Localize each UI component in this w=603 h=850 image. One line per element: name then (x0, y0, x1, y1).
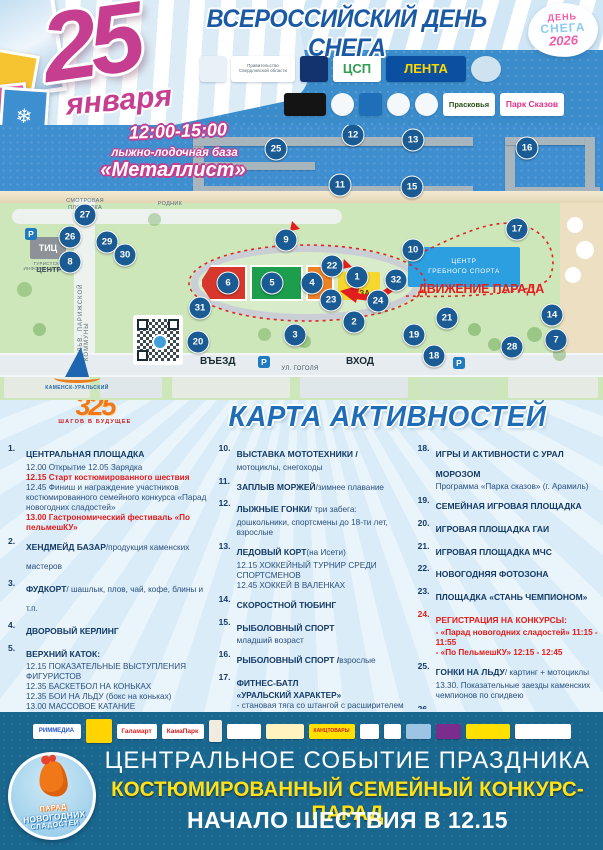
kanctovary-logo: КАНЦТОВАРЫ (309, 724, 355, 739)
map-marker-24: 24 (367, 290, 390, 313)
promenade-road (12, 209, 342, 224)
speaker-photo (471, 56, 501, 82)
kamensk-crest-logo (200, 56, 226, 82)
activities-col-3: 18.ИГРЫ И АКТИВНОСТИ С УРАЛ МОРОЗОМПрогр… (418, 443, 598, 709)
activity-number: 16. (219, 649, 234, 669)
city-logo-sail (65, 347, 89, 377)
activity-description: / три забега: (310, 505, 357, 514)
rowing-label2: ГРЕБНОГО СПОРТА (428, 267, 500, 277)
sponsor-logo (406, 724, 431, 739)
map-marker-20: 20 (187, 331, 210, 354)
activity-number: 25. (418, 661, 433, 701)
rowing-center-building: ЦЕНТР ГРЕБНОГО СПОРТА (408, 247, 520, 287)
building-block (300, 377, 408, 398)
activity-number: 3. (8, 578, 23, 617)
activity-item-11: 11.ЗАПЛЫВ МОРЖЕЙ/зимнее плавание (219, 476, 409, 496)
activity-title: ИГРОВАЯ ПЛОЩАДКА МЧС (436, 547, 552, 557)
map-marker-30: 30 (114, 244, 137, 267)
activity-detail: 12.15 Старт костюмированного шествия (26, 473, 210, 483)
activity-title: ЛЕДОВЫЙ КОРТ (237, 547, 307, 557)
activity-item-21: 21.ИГРОВАЯ ПЛОЩАДКА МЧС (418, 541, 598, 561)
activity-number: 5. (8, 643, 23, 709)
activity-detail: Программа «Парка сказов» (г. Арамиль) (436, 482, 598, 492)
activity-title: ВЫСТАВКА МОТОТЕХНИКИ / (237, 449, 358, 459)
venue-name: «Металлист» (88, 159, 258, 182)
building-block (508, 377, 598, 398)
sponsor-strip: РИММЕДИАГаламартКамаПаркКАНЦТОВАРЫ (10, 717, 593, 745)
map-marker-26: 26 (59, 226, 82, 249)
map-marker-1: 1 (346, 266, 369, 289)
footer: РИММЕДИАГаламартКамаПаркКАНЦТОВАРЫ ЦЕНТР… (0, 712, 603, 850)
activity-number: 22. (418, 563, 433, 583)
parking-icon: P (25, 228, 37, 240)
map-marker-2: 2 (343, 311, 366, 334)
activity-title: ИГРЫ И АКТИВНОСТИ С УРАЛ МОРОЗОМ (436, 449, 564, 479)
activity-item-16: 16.РЫБОЛОВНЫЙ СПОРТ /взрослые (219, 649, 409, 669)
qr-code (133, 315, 183, 365)
activity-detail: 12.00 Открытие 12.05 Зарядка (26, 463, 210, 473)
activities-col-1: 1.ЦЕНТРАЛЬНАЯ ПЛОЩАДКА12.00 Открытие 12.… (8, 443, 210, 709)
activity-item-17: 17.ФИТНЕС-БАТЛ«УРАЛЬСКИЙ ХАРАКТЕР»- стан… (219, 672, 409, 709)
activity-title: ФУДКОРТ (26, 584, 66, 594)
map-marker-7: 7 (545, 329, 568, 352)
rim-media-logo: РИММЕДИА (33, 724, 81, 739)
activity-item-13: 13.ЛЕДОВЫЙ КОРТ(на Исети)12.15 ХОККЕЙНЫЙ… (219, 541, 409, 591)
activity-number: 21. (418, 541, 433, 561)
map-marker-25: 25 (265, 138, 288, 161)
activity-number: 4. (8, 620, 23, 640)
lenta-logo: ЛЕНТА (386, 56, 466, 82)
map-marker-16: 16 (516, 137, 539, 160)
activities-columns: 1.ЦЕНТРАЛЬНАЯ ПЛОЩАДКА12.00 Открытие 12.… (8, 443, 598, 709)
activity-number: 20. (418, 518, 433, 538)
map-marker-32: 32 (385, 269, 408, 292)
activity-title: СЕМЕЙНАЯ ИГРОВАЯ ПЛОЩАДКА (436, 501, 582, 511)
activity-item-2: 2.ХЕНДМЕЙД БАЗАР/продукция каменских мас… (8, 536, 210, 575)
building-block (418, 377, 498, 398)
rooster-candy-icon (37, 759, 69, 798)
spring-label: РОДНИК (150, 201, 190, 208)
snow-day-poster: ❄ ВСЕРОССИЙСКИЙ ДЕНЬ СНЕГА ДЕНЬ СНЕГА 20… (0, 0, 603, 850)
activity-detail: 13.00 МАССОВОЕ КАТАНИЕ (26, 702, 210, 709)
activity-item-26: 26.ТИЦ / КАФЕ «АВОКАДО»- «Татьянин сбите… (418, 704, 598, 709)
activity-item-22: 22.НОВОГОДНЯЯ ФОТОЗОНА (418, 563, 598, 583)
activity-detail: 13.00 Гастрономический фестиваль «По пел… (26, 513, 210, 533)
activity-item-18: 18.ИГРЫ И АКТИВНОСТИ С УРАЛ МОРОЗОМПрогр… (418, 443, 598, 492)
activity-title: ФИТНЕС-БАТЛ (237, 678, 299, 688)
activity-item-10: 10.ВЫСТАВКА МОТОТЕХНИКИ /мотоциклы, снег… (219, 443, 409, 473)
activity-item-14: 14.СКОРОСТНОЙ ТЮБИНГ (219, 594, 409, 614)
sponsor-logo (209, 720, 222, 742)
activity-title: ИГРОВАЯ ПЛОЩАДКА ГАИ (436, 524, 550, 534)
qr-finder (168, 319, 179, 330)
activity-detail: 12.45 Финиш и награждение участников кос… (26, 483, 210, 513)
sponsor-logo (86, 719, 112, 743)
activity-title: РЕГИСТРАЦИЯ НА КОНКУРСЫ: (436, 615, 567, 625)
map-marker-13: 13 (402, 129, 425, 152)
praskovya-logo: Прасковья (443, 93, 495, 116)
activity-item-15: 15.РЫБОЛОВНЫЙ СПОРТмладший возраст (219, 617, 409, 647)
activity-detail: 12.35 БОИ НА ЛЬДУ (бокс на коньках) (26, 692, 210, 702)
map-marker-17: 17 (506, 218, 529, 241)
map-marker-14: 14 (541, 304, 564, 327)
qr-finder (137, 319, 148, 330)
map-marker-19: 19 (403, 324, 426, 347)
map-marker-15: 15 (401, 176, 424, 199)
activity-item-12: 12.ЛЫЖНЫЕ ГОНКИ/ три забега:дошкольники,… (219, 498, 409, 538)
activity-item-4: 4.ДВОРОВЫЙ КЕРЛИНГ (8, 620, 210, 640)
csp-logo: ЦСП (333, 56, 381, 82)
activity-detail: 12.35 БАСКЕТБОЛ НА КОНЬКАХ (26, 682, 210, 692)
map-marker-11: 11 (329, 174, 352, 197)
partner-logos-row1: Правительство Свердловской областиЦСПЛЕН… (200, 56, 501, 82)
partner-logos-row2: ПрасковьяПарк Сказов (284, 93, 564, 116)
activity-title: ВЕРХНИЙ КАТОК: (26, 649, 100, 659)
k-letter-logo (387, 93, 410, 116)
map-marker-4: 4 (301, 272, 324, 295)
activity-number: 24. (418, 609, 433, 659)
kamensk-uralsky-logo: КАМЕНСК-УРАЛЬСКИЙ (42, 347, 112, 391)
activity-title: ЛЫЖНЫЕ ГОНКИ (237, 504, 310, 514)
sponsor-logo (466, 724, 510, 739)
activity-number: 17. (219, 672, 234, 709)
diamond-logo (300, 56, 328, 82)
footer-heading: ЦЕНТРАЛЬНОЕ СОБЫТИЕ ПРАЗДНИКА (95, 747, 600, 775)
activity-description: (на Исети) (306, 548, 345, 557)
activity-item-5: 5.ВЕРХНИЙ КАТОК:12.15 ПОКАЗАТЕЛЬНЫЕ ВЫСТ… (8, 643, 210, 709)
steps-text: ШАГОВ В БУДУЩЕЕ (40, 419, 150, 425)
activity-title: ЗАПЛЫВ МОРЖЕЙ (237, 482, 316, 492)
map-marker-22: 22 (321, 255, 344, 278)
gogol-street-label: УЛ. ГОГОЛЯ (275, 366, 325, 373)
galamart-logo: Галамарт (117, 724, 157, 739)
activity-number: 1. (8, 443, 23, 533)
activity-number: 19. (418, 495, 433, 515)
activity-number: 13. (219, 541, 234, 591)
a-letter-logo (359, 93, 382, 116)
parking-icon: P (258, 356, 270, 368)
activity-number: 12. (219, 498, 234, 538)
sponsor-logo (266, 724, 304, 739)
terra-sport-logo (284, 93, 326, 116)
sponsor-logo (436, 724, 461, 739)
activity-item-23: 23.ПЛОЩАДКА «СТАНЬ ЧЕМПИОНОМ» (418, 586, 598, 606)
activity-detail: 12.15 ХОККЕЙНЫЙ ТУРНИР СРЕДИ СПОРТСМЕНОВ (237, 561, 409, 581)
activity-item-24: 24.РЕГИСТРАЦИЯ НА КОНКУРСЫ:- «Парад ново… (418, 609, 598, 659)
activity-title: РЫБОЛОВНЫЙ СПОРТ (237, 623, 335, 633)
activity-detail: 12.45 ХОККЕЙ В ВАЛЕНКАХ (237, 581, 409, 591)
sponsor-logo (227, 724, 261, 739)
activity-number: 14. (219, 594, 234, 614)
activity-title: ЦЕНТРАЛЬНАЯ ПЛОЩАДКА (26, 449, 144, 459)
activity-title: ПЛОЩАДКА «СТАНЬ ЧЕМПИОНОМ» (436, 592, 588, 602)
map-marker-27: 27 (74, 204, 97, 227)
activity-detail: младший возраст (237, 636, 409, 646)
entrance-label: ВХОД (346, 356, 374, 367)
activity-detail: мотоциклы, снегоходы (237, 463, 409, 473)
venue-type: лыжно-лодочная база (92, 147, 257, 159)
activity-detail: 12.15 ПОКАЗАТЕЛЬНЫЕ ВЫСТУПЛЕНИЯ ФИГУРИСТ… (26, 662, 210, 682)
badge-year: 2026 (549, 33, 579, 47)
activity-number: 26. (418, 704, 433, 709)
activity-title: РЫБОЛОВНЫЙ СПОРТ / (237, 655, 339, 665)
city-logo-text: КАМЕНСК-УРАЛЬСКИЙ (42, 385, 112, 391)
building-block (172, 377, 290, 398)
activity-number: 18. (418, 443, 433, 492)
map-marker-6: 6 (217, 272, 240, 295)
parking-icon: P (453, 357, 465, 369)
map-marker-31: 31 (189, 297, 212, 320)
avokado-cafe-logo (415, 93, 438, 116)
activity-item-3: 3.ФУДКОРТ/ шашлык, плов, чай, кофе, блин… (8, 578, 210, 617)
activity-number: 11. (219, 476, 234, 496)
activity-number: 2. (8, 536, 23, 575)
map-marker-21: 21 (436, 307, 459, 330)
activity-title: СКОРОСТНОЙ ТЮБИНГ (237, 600, 337, 610)
kamapark-logo: КамаПарк (162, 724, 204, 739)
activity-description: / картинг + мотоциклы (505, 668, 589, 677)
activity-detail: - становая тяга со штангой с расширителе… (237, 701, 409, 709)
activity-number: 15. (219, 617, 234, 647)
activity-number: 10. (219, 443, 234, 473)
qr-finder (137, 350, 148, 361)
footer-start-time: НАЧАЛО ШЕСТВИЯ В 12.15 (95, 807, 600, 834)
park-skazov-logo: Парк Сказов (500, 93, 564, 116)
map-marker-10: 10 (402, 239, 425, 262)
activity-detail: - «По ПельмешКУ» 12:15 - 12:45 (436, 648, 598, 658)
rowing-label1: ЦЕНТР (451, 257, 476, 267)
activity-title: ГОНКИ НА ЛЬДУ (436, 667, 505, 677)
sponsor-logo (360, 724, 379, 739)
fish-club-logo (331, 93, 354, 116)
map-marker-3: 3 (284, 324, 307, 347)
parade-direction-label: ДВИЖЕНИЕ ПАРАДА (418, 282, 544, 296)
activity-number: 23. (418, 586, 433, 606)
sponsor-logo (384, 724, 401, 739)
map-marker-5: 5 (261, 272, 284, 295)
activity-detail: дошкольники, спортсмены до 18-ти лет, вз… (237, 518, 409, 538)
activity-title: ХЕНДМЕЙД БАЗАР (26, 542, 106, 552)
activity-detail: 13.30. Показательные заезды каменских че… (436, 681, 598, 701)
map-marker-18: 18 (423, 345, 446, 368)
activity-item-1: 1.ЦЕНТРАЛЬНАЯ ПЛОЩАДКА12.00 Открытие 12.… (8, 443, 210, 533)
poster-title: ВСЕРОССИЙСКИЙ ДЕНЬ СНЕГА (170, 5, 523, 63)
activity-item-19: 19.СЕМЕЙНАЯ ИГРОВАЯ ПЛОЩАДКА (418, 495, 598, 515)
activity-detail: «УРАЛЬСКИЙ ХАРАКТЕР» (237, 691, 409, 701)
activity-description: /зимнее плавание (316, 483, 384, 492)
activities-title: КАРТА АКТИВНОСТЕЙ (193, 401, 582, 434)
activities-col-2: 10.ВЫСТАВКА МОТОТЕХНИКИ /мотоциклы, снег… (219, 443, 409, 709)
activity-title: НОВОГОДНЯЯ ФОТОЗОНА (436, 569, 549, 579)
map-marker-23: 23 (320, 289, 343, 312)
map-marker-8: 8 (59, 251, 82, 274)
sverdlovsk-government-logo: Правительство Свердловской области (231, 56, 295, 82)
map-marker-28: 28 (501, 336, 524, 359)
qr-center-logo (152, 334, 168, 350)
activity-item-20: 20.ИГРОВАЯ ПЛОЩАДКА ГАИ (418, 518, 598, 538)
activity-description: взрослые (339, 656, 375, 665)
map-marker-9: 9 (275, 229, 298, 252)
activity-title: ДВОРОВЫЙ КЕРЛИНГ (26, 626, 119, 636)
entry-label: ВЪЕЗД (200, 356, 235, 367)
sweets-parade-logo: ПАРАД НОВОГОДНИХ СЛАДОСТЕЙ (4, 748, 101, 845)
activity-detail: - «Парад новогодних сладостей» 11:15 - 1… (436, 628, 598, 648)
activity-item-25: 25.ГОНКИ НА ЛЬДУ/ картинг + мотоциклы13.… (418, 661, 598, 701)
sponsor-logo (515, 724, 571, 739)
